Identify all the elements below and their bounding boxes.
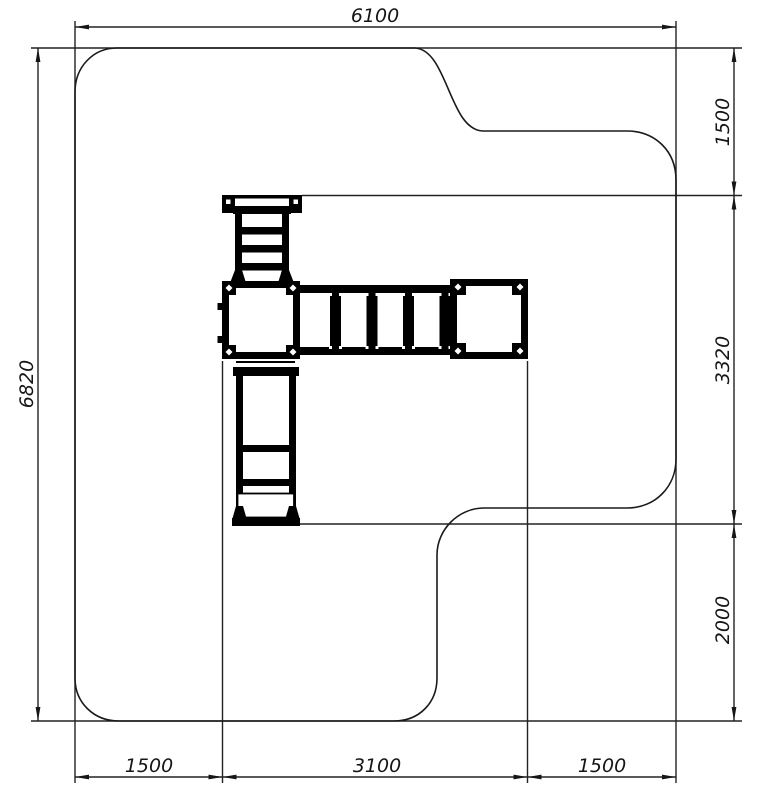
dim-label-right-middle: 3320 — [712, 336, 734, 384]
bridge-planks — [329, 288, 452, 352]
dim-label-top-width: 6100 — [351, 5, 399, 27]
slide-step — [238, 494, 295, 518]
top-ladder — [222, 195, 302, 283]
dim-label-bottom-right: 1500 — [578, 755, 626, 777]
playground-equipment — [218, 195, 529, 526]
dim-label-right-upper: 1500 — [712, 98, 734, 146]
safety-zone-outline — [75, 48, 676, 721]
bottom-ladder — [232, 361, 300, 526]
dimension-labels: 6100 6820 1500 3320 2000 1500 3100 1500 — [16, 5, 734, 777]
extension-lines — [31, 21, 742, 783]
bridge — [298, 285, 452, 355]
dimension-lines — [36, 25, 737, 780]
dim-label-bottom-left: 1500 — [125, 755, 173, 777]
dim-label-left-height: 6820 — [16, 360, 38, 408]
central-platform — [218, 281, 301, 359]
dim-label-bottom-center: 3100 — [353, 755, 401, 777]
cad-drawing-sheet: 6100 6820 1500 3320 2000 1500 3100 1500 — [0, 0, 758, 800]
plan-view-drawing: 6100 6820 1500 3320 2000 1500 3100 1500 — [0, 0, 758, 800]
dim-label-right-lower: 2000 — [712, 596, 734, 644]
right-platform — [450, 279, 528, 359]
